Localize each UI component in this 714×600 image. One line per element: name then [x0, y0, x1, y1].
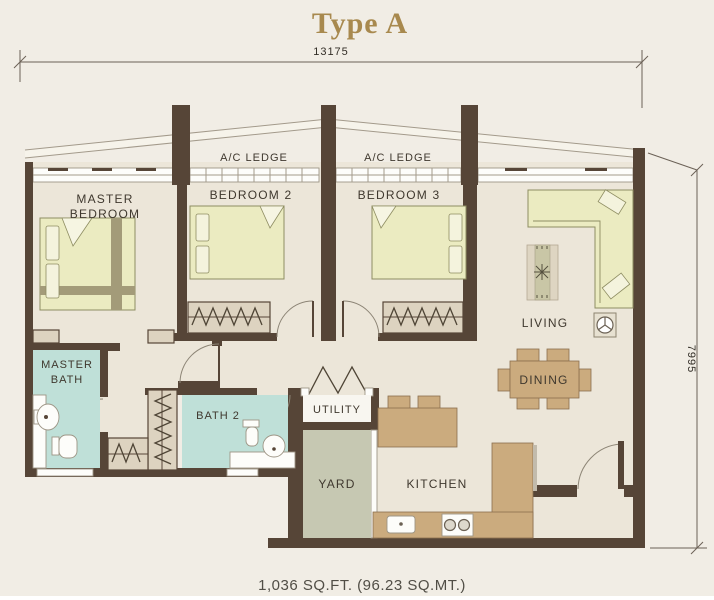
master-bath-toilet [59, 435, 77, 458]
master-bedroom-label-line2: BEDROOM [70, 207, 140, 221]
dining-chair [517, 349, 539, 361]
dining-label: DINING [519, 373, 568, 387]
bedroom2-furniture [188, 206, 284, 333]
utility-label: UTILITY [313, 404, 361, 416]
bath-window [37, 469, 93, 476]
bedroom3-furniture [372, 206, 466, 333]
plan-title: Type A [312, 7, 408, 40]
bar-stool [388, 396, 410, 409]
kitchen-label: KITCHEN [406, 477, 467, 491]
height-dimension-label: 7995 [685, 345, 697, 373]
bath2 [182, 395, 295, 468]
bedroom2-label: BEDROOM 2 [210, 188, 293, 202]
dining-chair [579, 369, 591, 391]
master-dresser-left [33, 330, 59, 343]
master-bedroom-label-line1: MASTER [76, 192, 133, 206]
dining-chair [517, 397, 539, 409]
master-bath-toilet-tank [52, 437, 59, 455]
living-label: LIVING [522, 316, 569, 330]
width-dimension-label: 13175 [313, 46, 349, 58]
kitchen-island [378, 408, 457, 447]
utility-yard [303, 395, 371, 538]
yard-label: YARD [318, 477, 355, 491]
master-dresser-right [148, 330, 174, 343]
ac-ledge-right-label: A/C LEDGE [364, 152, 432, 164]
master-bath-label-line2: BATH [51, 374, 84, 386]
bar-stool [418, 396, 440, 409]
bath2-sink [263, 435, 285, 457]
bedroom3-label: BEDROOM 3 [358, 188, 441, 202]
bath2-label: BATH 2 [196, 410, 240, 422]
bath2-toilet [246, 427, 258, 446]
dining-chair [547, 349, 569, 361]
area-label: 1,036 SQ.FT. (96.23 SQ.MT.) [258, 577, 466, 594]
bath2-window [227, 469, 258, 476]
entrance-door [618, 441, 624, 489]
page-edge [0, 596, 714, 600]
bath2-toilet-tank [243, 420, 259, 427]
floor-plan-page: { "title": "Type A", "dimensions": { "wi… [0, 0, 714, 600]
dining-chair [547, 397, 569, 409]
master-bath-label-line1: MASTER [41, 359, 93, 371]
bath2-counter [230, 452, 295, 468]
floor-plan-svg: Type A 13175 7995 [0, 0, 714, 600]
ac-ledge-left-label: A/C LEDGE [220, 152, 288, 164]
dining-chair [498, 369, 510, 391]
